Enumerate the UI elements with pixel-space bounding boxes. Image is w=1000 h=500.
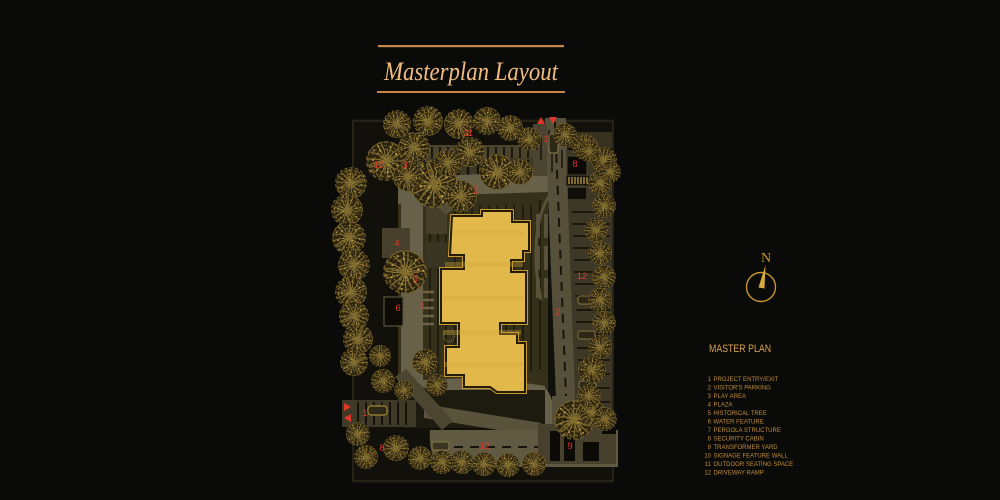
svg-text:HISTORICAL TREE: HISTORICAL TREE bbox=[714, 411, 767, 417]
svg-text:DRIVEWAY RAMP: DRIVEWAY RAMP bbox=[714, 471, 764, 477]
svg-text:1: 1 bbox=[362, 408, 367, 419]
svg-text:10: 10 bbox=[704, 454, 711, 460]
svg-text:7: 7 bbox=[419, 302, 424, 313]
svg-text:12: 12 bbox=[480, 441, 491, 452]
svg-text:PERGOLA STRUCTURE: PERGOLA STRUCTURE bbox=[714, 428, 781, 434]
svg-text:MASTER PLAN: MASTER PLAN bbox=[709, 343, 771, 355]
svg-text:10: 10 bbox=[374, 160, 385, 171]
svg-text:PLAY AREA: PLAY AREA bbox=[714, 394, 746, 400]
svg-text:VISITOR'S PARKING: VISITOR'S PARKING bbox=[714, 386, 772, 392]
svg-text:4: 4 bbox=[394, 238, 399, 249]
svg-text:SIGNAGE FEATURE WALL: SIGNAGE FEATURE WALL bbox=[714, 454, 789, 460]
svg-text:SECURITY CABIN: SECURITY CABIN bbox=[714, 437, 764, 443]
svg-text:1: 1 bbox=[543, 134, 548, 145]
svg-text:PROJECT ENTRY/EXIT: PROJECT ENTRY/EXIT bbox=[714, 377, 779, 383]
svg-text:N: N bbox=[761, 251, 771, 266]
svg-text:8: 8 bbox=[572, 159, 577, 170]
svg-text:8: 8 bbox=[379, 443, 384, 454]
svg-text:PLAZA: PLAZA bbox=[714, 403, 733, 409]
svg-text:OUTDOOR SEATING SPACE: OUTDOOR SEATING SPACE bbox=[714, 462, 794, 468]
svg-text:9: 9 bbox=[567, 441, 572, 452]
svg-text:3: 3 bbox=[402, 160, 407, 171]
svg-text:5: 5 bbox=[412, 274, 417, 285]
svg-text:12: 12 bbox=[704, 471, 711, 477]
svg-text:Masterplan Layout: Masterplan Layout bbox=[383, 57, 559, 86]
svg-text:TRANSFORMER YARD: TRANSFORMER YARD bbox=[714, 445, 779, 451]
svg-text:12: 12 bbox=[577, 271, 588, 282]
svg-text:11: 11 bbox=[463, 128, 473, 139]
svg-text:11: 11 bbox=[705, 462, 712, 468]
svg-text:6: 6 bbox=[395, 303, 400, 314]
svg-text:WATER FEATURE: WATER FEATURE bbox=[714, 420, 764, 426]
svg-text:2: 2 bbox=[473, 185, 478, 196]
svg-text:2: 2 bbox=[555, 307, 560, 318]
